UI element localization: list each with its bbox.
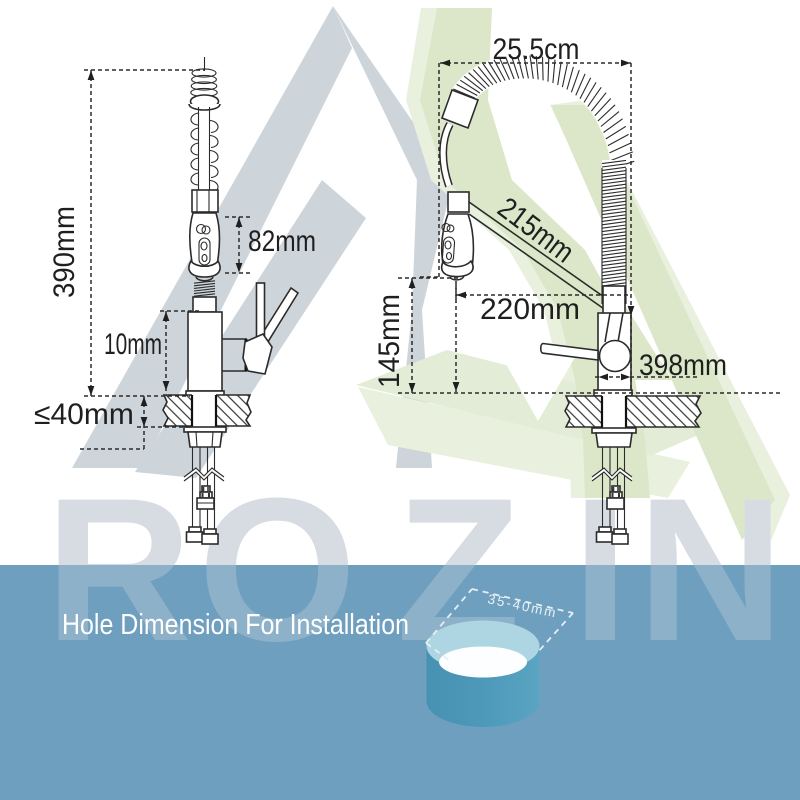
svg-text:25.5cm: 25.5cm — [493, 33, 580, 66]
svg-text:145mm: 145mm — [373, 294, 406, 388]
svg-text:220mm: 220mm — [480, 293, 580, 326]
svg-text:≤40mm: ≤40mm — [34, 398, 134, 431]
svg-text:82mm: 82mm — [248, 225, 316, 258]
svg-text:Hole Dimension For Installatio: Hole Dimension For Installation — [62, 609, 409, 641]
svg-text:390mm: 390mm — [48, 206, 81, 298]
svg-text:10mm: 10mm — [104, 328, 162, 361]
svg-text:398mm: 398mm — [639, 349, 727, 382]
